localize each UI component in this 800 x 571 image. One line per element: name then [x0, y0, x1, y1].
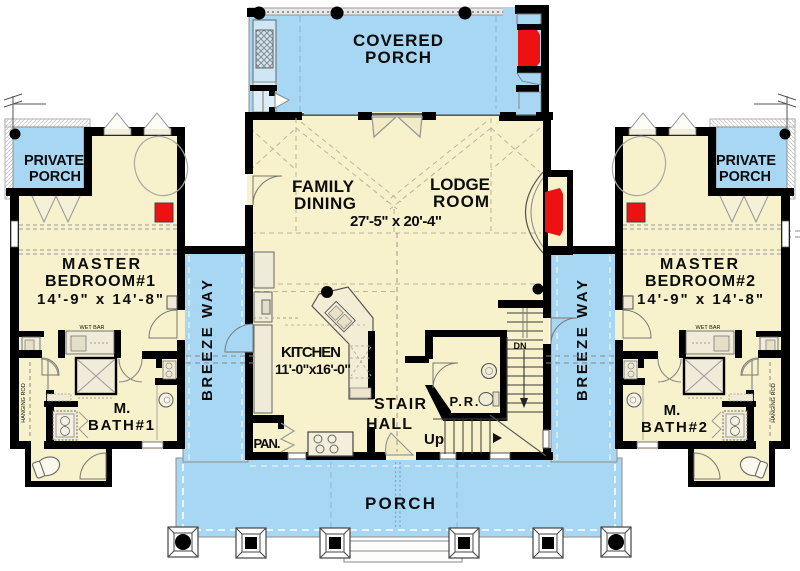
svg-text:27'-5" x 20'-4": 27'-5" x 20'-4"	[350, 213, 442, 230]
svg-text:HANGING ROD: HANGING ROD	[771, 383, 777, 422]
svg-text:MASTER: MASTER	[62, 256, 140, 273]
svg-text:HANGING ROD: HANGING ROD	[21, 383, 27, 422]
svg-text:HALL: HALL	[366, 416, 412, 433]
svg-text:DINING: DINING	[294, 194, 356, 213]
svg-text:ROOM: ROOM	[433, 192, 489, 211]
svg-text:M.: M.	[664, 402, 681, 419]
svg-text:M.: M.	[114, 400, 131, 417]
svg-text:11'-0"x16'-0": 11'-0"x16'-0"	[275, 361, 351, 377]
svg-text:PAN.: PAN.	[254, 436, 281, 451]
svg-text:PORCH: PORCH	[29, 169, 81, 185]
svg-text:PRIVATE: PRIVATE	[716, 153, 776, 169]
svg-text:Up: Up	[424, 431, 444, 448]
svg-text:PRIVATE: PRIVATE	[24, 153, 84, 169]
svg-text:STAIR: STAIR	[374, 396, 426, 413]
svg-text:PORCH: PORCH	[365, 48, 431, 67]
svg-text:PORCH: PORCH	[365, 494, 435, 513]
svg-text:MASTER: MASTER	[660, 256, 738, 273]
svg-text:PORCH: PORCH	[719, 169, 771, 185]
svg-text:BREEZE WAY: BREEZE WAY	[199, 279, 216, 401]
svg-text:KITCHEN: KITCHEN	[281, 344, 341, 361]
svg-text:BEDROOM#2: BEDROOM#2	[645, 273, 755, 290]
svg-text:BREEZE WAY: BREEZE WAY	[574, 279, 591, 401]
svg-text:WET BAR: WET BAR	[696, 325, 721, 331]
svg-text:DN: DN	[514, 341, 527, 351]
svg-text:BEDROOM#1: BEDROOM#1	[45, 273, 155, 290]
svg-text:WET BAR: WET BAR	[80, 325, 105, 331]
svg-text:P.R.: P.R.	[450, 394, 479, 409]
